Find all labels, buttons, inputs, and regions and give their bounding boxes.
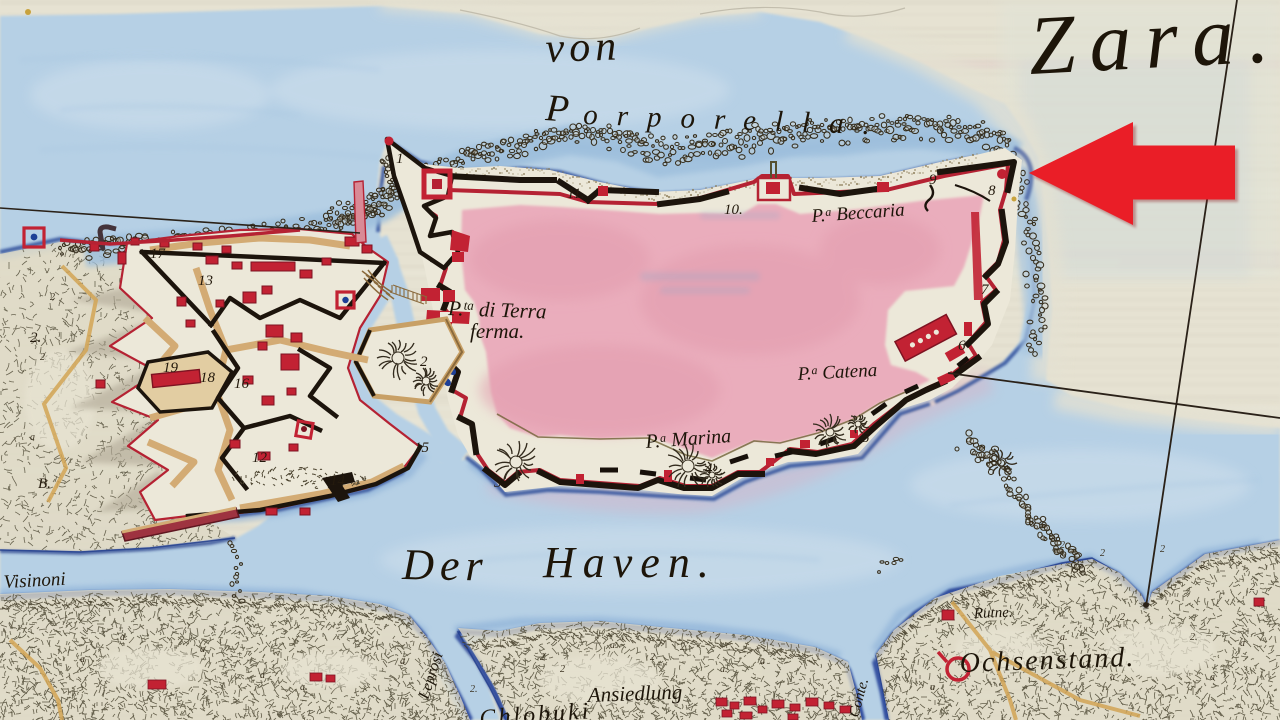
- svg-text:2: 2: [680, 642, 685, 653]
- svg-text:a: a: [1110, 672, 1115, 683]
- svg-text:2: 2: [40, 352, 45, 363]
- svg-text:Der: Der: [401, 540, 489, 591]
- svg-text:11.: 11.: [567, 186, 585, 202]
- svg-text:a: a: [260, 670, 265, 681]
- svg-text:a.: a.: [300, 682, 308, 693]
- svg-text:a.: a.: [720, 664, 728, 675]
- svg-text:2: 2: [650, 652, 655, 663]
- svg-text:a: a: [200, 644, 205, 655]
- svg-text:4: 4: [705, 461, 713, 477]
- svg-text:B.: B.: [38, 476, 51, 492]
- svg-text:1: 1: [396, 151, 404, 167]
- svg-text:2.: 2.: [540, 652, 548, 663]
- svg-text:von: von: [545, 23, 622, 72]
- svg-text:2: 2: [1230, 552, 1235, 563]
- svg-text:5: 5: [862, 430, 870, 446]
- svg-text:a.: a.: [610, 640, 618, 651]
- svg-text:Haven.: Haven.: [542, 538, 717, 587]
- svg-text:2: 2: [50, 292, 55, 303]
- svg-text:8: 8: [988, 183, 996, 199]
- svg-text:2: 2: [1100, 548, 1105, 559]
- svg-text:a.: a.: [120, 632, 128, 643]
- svg-text:2: 2: [560, 664, 565, 675]
- svg-text:14: 14: [330, 473, 346, 489]
- svg-text:2: 2: [420, 354, 428, 370]
- svg-text:2.: 2.: [900, 652, 908, 663]
- svg-text:a: a: [930, 682, 935, 693]
- svg-text:Ansiedlung: Ansiedlung: [585, 680, 682, 707]
- svg-text:10.: 10.: [724, 202, 743, 218]
- svg-text:Rutne.: Rutne.: [973, 605, 1013, 622]
- svg-text:2.: 2.: [1060, 540, 1068, 551]
- svg-text:P.a Catena: P.a Catena: [796, 360, 878, 385]
- svg-text:2: 2: [1250, 582, 1255, 593]
- svg-text:a.: a.: [1060, 632, 1068, 643]
- svg-text:2.: 2.: [470, 684, 478, 695]
- svg-text:a: a: [80, 654, 85, 665]
- svg-text:ferma.: ferma.: [470, 319, 524, 343]
- svg-text:9: 9: [929, 172, 937, 188]
- svg-text:P: P: [543, 87, 570, 131]
- svg-text:2: 2: [1160, 544, 1165, 555]
- svg-text:18: 18: [200, 370, 216, 386]
- svg-text:2.: 2.: [30, 330, 41, 346]
- svg-text:a: a: [1210, 672, 1215, 683]
- svg-text:12: 12: [252, 450, 268, 466]
- svg-text:a: a: [760, 656, 765, 667]
- svg-text:16: 16: [234, 376, 250, 392]
- svg-text:2.: 2.: [1190, 632, 1198, 643]
- svg-text:3: 3: [493, 475, 502, 491]
- svg-text:2.: 2.: [430, 672, 438, 683]
- svg-text:19: 19: [163, 360, 179, 376]
- svg-text:a: a: [30, 432, 35, 443]
- svg-text:13: 13: [198, 273, 213, 289]
- svg-text:2: 2: [1120, 612, 1125, 623]
- svg-text:15: 15: [414, 440, 430, 456]
- svg-text:6: 6: [958, 338, 966, 354]
- svg-text:a: a: [400, 656, 405, 667]
- svg-text:17: 17: [150, 246, 167, 262]
- svg-text:Visinoni: Visinoni: [3, 569, 66, 593]
- svg-text:Zara.: Zara.: [1026, 0, 1280, 93]
- svg-text:a: a: [1240, 638, 1245, 649]
- svg-text:2: 2: [1200, 560, 1205, 571]
